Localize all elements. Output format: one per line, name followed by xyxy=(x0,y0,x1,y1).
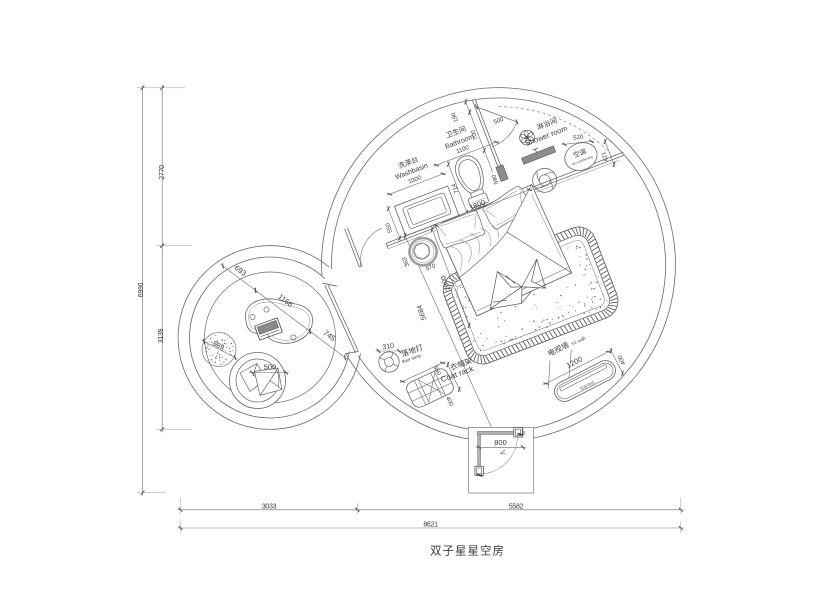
svg-text:5582: 5582 xyxy=(509,503,524,510)
svg-text:3139: 3139 xyxy=(158,328,165,343)
svg-text:500: 500 xyxy=(264,363,277,372)
svg-text:8621: 8621 xyxy=(423,522,438,529)
svg-text:3033: 3033 xyxy=(262,503,277,510)
svg-text:2770: 2770 xyxy=(159,165,166,180)
svg-text:6990: 6990 xyxy=(138,282,145,297)
svg-text:双子星星空房: 双子星星空房 xyxy=(430,544,505,558)
svg-text:800: 800 xyxy=(494,438,507,447)
